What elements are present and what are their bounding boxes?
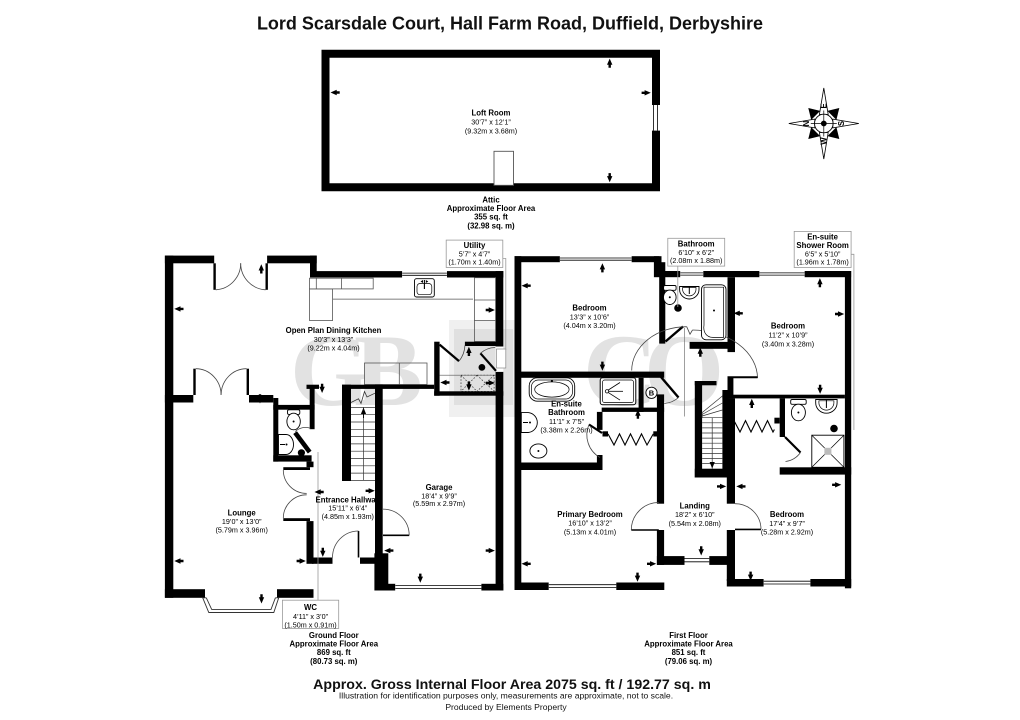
svg-text:(3.40m x 3.28m): (3.40m x 3.28m) [762,340,814,349]
svg-text:(1.70m x 1.40m): (1.70m x 1.40m) [448,258,500,267]
svg-text:B: B [649,389,655,398]
svg-text:En-suite: En-suite [551,400,582,409]
svg-text:(2.08m x 1.88m): (2.08m x 1.88m) [670,256,722,265]
svg-text:Loft Room: Loft Room [472,109,511,118]
svg-text:(3.38m x 2.26m): (3.38m x 2.26m) [540,425,592,434]
svg-text:WC: WC [304,603,317,612]
svg-text:851 sq. ft: 851 sq. ft [672,648,706,657]
svg-text:(1.50m x 0.91m): (1.50m x 0.91m) [284,620,336,629]
svg-text:17’4” x 9’7”: 17’4” x 9’7” [769,519,805,528]
svg-text:30’7” x 12’1”: 30’7” x 12’1” [471,118,511,127]
svg-text:869 sq. ft: 869 sq. ft [317,648,351,657]
svg-text:W: W [820,137,829,145]
svg-text:30’3” x 13’3”: 30’3” x 13’3” [314,335,354,344]
svg-text:Illustration for identificatio: Illustration for identification purposes… [339,691,673,701]
svg-text:Approximate Floor Area: Approximate Floor Area [447,204,536,213]
svg-text:Produced by Elements Property: Produced by Elements Property [445,702,567,712]
svg-text:Bedroom: Bedroom [572,304,606,313]
svg-text:Bedroom: Bedroom [770,510,804,519]
svg-text:11’2” x 10’9”: 11’2” x 10’9” [768,331,808,340]
svg-text:Lord Scarsdale Court, Hall Far: Lord Scarsdale Court, Hall Farm Road, Du… [257,14,763,34]
svg-text:(4.85m x 1.93m): (4.85m x 1.93m) [322,512,374,521]
svg-text:N: N [802,120,811,126]
svg-text:E: E [820,103,829,108]
svg-text:Bedroom: Bedroom [771,321,805,330]
svg-text:(5.79m x 3.96m): (5.79m x 3.96m) [216,526,268,535]
svg-text:16’10” x 13’2”: 16’10” x 13’2” [568,519,612,528]
svg-text:(80.73 sq. m): (80.73 sq. m) [310,657,358,666]
svg-text:Bathroom: Bathroom [548,408,585,417]
svg-text:Open Plan Dining Kitchen: Open Plan Dining Kitchen [286,326,382,335]
svg-text:(4.04m x 3.20m): (4.04m x 3.20m) [563,321,615,330]
svg-text:(5.54m x 2.08m): (5.54m x 2.08m) [669,519,721,528]
svg-text:(9.22m x 4.04m): (9.22m x 4.04m) [307,344,359,353]
svg-text:(9.32m x 3.68m): (9.32m x 3.68m) [465,127,517,136]
svg-text:(79.06 sq. m): (79.06 sq. m) [665,657,713,666]
svg-text:(5.13m x 4.01m): (5.13m x 4.01m) [564,527,616,536]
svg-text:13’3” x 10’6”: 13’3” x 10’6” [570,312,610,321]
svg-text:S: S [837,121,846,126]
svg-text:(32.98 sq. m): (32.98 sq. m) [467,221,515,230]
svg-text:(5.59m x 2.97m): (5.59m x 2.97m) [413,499,465,508]
svg-text:355 sq. ft: 355 sq. ft [474,213,508,222]
svg-text:(5.28m x 2.92m): (5.28m x 2.92m) [761,528,813,537]
svg-text:(1.96m x 1.78m): (1.96m x 1.78m) [796,258,848,267]
